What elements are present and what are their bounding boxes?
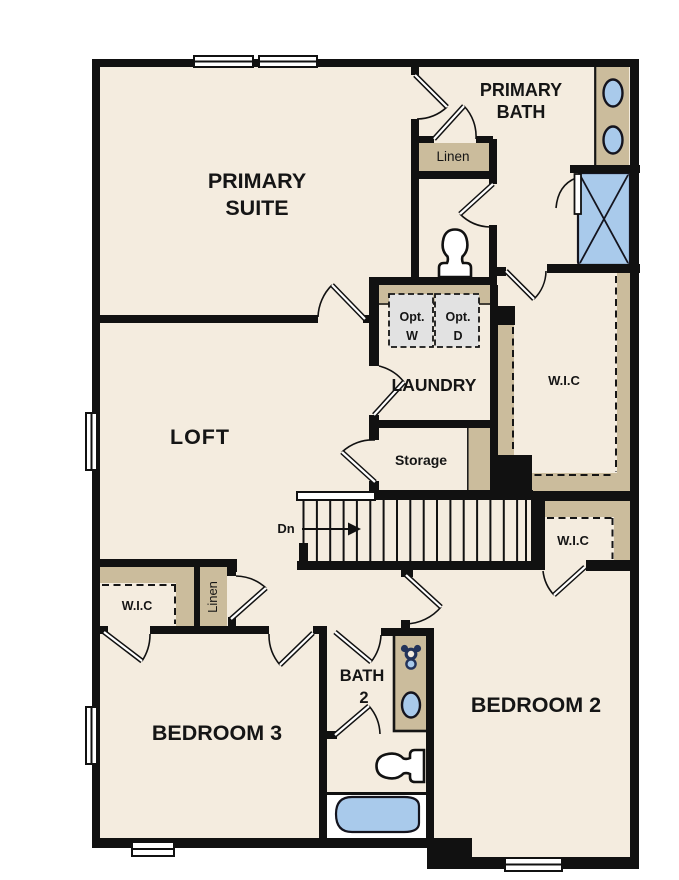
- svg-text:Opt.: Opt.: [446, 310, 471, 324]
- svg-text:Linen: Linen: [205, 581, 220, 613]
- svg-text:BEDROOM 3: BEDROOM 3: [152, 721, 282, 745]
- svg-text:BATH: BATH: [340, 667, 385, 685]
- svg-text:W.I.C: W.I.C: [557, 533, 589, 548]
- svg-text:Linen: Linen: [436, 149, 469, 164]
- svg-text:LAUNDRY: LAUNDRY: [392, 375, 477, 395]
- svg-text:D: D: [453, 329, 462, 343]
- svg-text:SUITE: SUITE: [225, 196, 288, 220]
- svg-text:W.I.C: W.I.C: [122, 599, 153, 613]
- svg-text:Storage: Storage: [395, 452, 447, 468]
- svg-text:BATH: BATH: [497, 102, 546, 122]
- svg-text:PRIMARY: PRIMARY: [208, 169, 306, 193]
- svg-text:2: 2: [359, 689, 368, 707]
- svg-text:W: W: [406, 329, 418, 343]
- svg-text:Opt.: Opt.: [400, 310, 425, 324]
- svg-text:BEDROOM 2: BEDROOM 2: [471, 693, 601, 717]
- svg-text:Dn: Dn: [277, 521, 294, 536]
- svg-text:W.I.C: W.I.C: [548, 373, 580, 388]
- svg-text:LOFT: LOFT: [170, 425, 230, 449]
- svg-text:PRIMARY: PRIMARY: [480, 80, 562, 100]
